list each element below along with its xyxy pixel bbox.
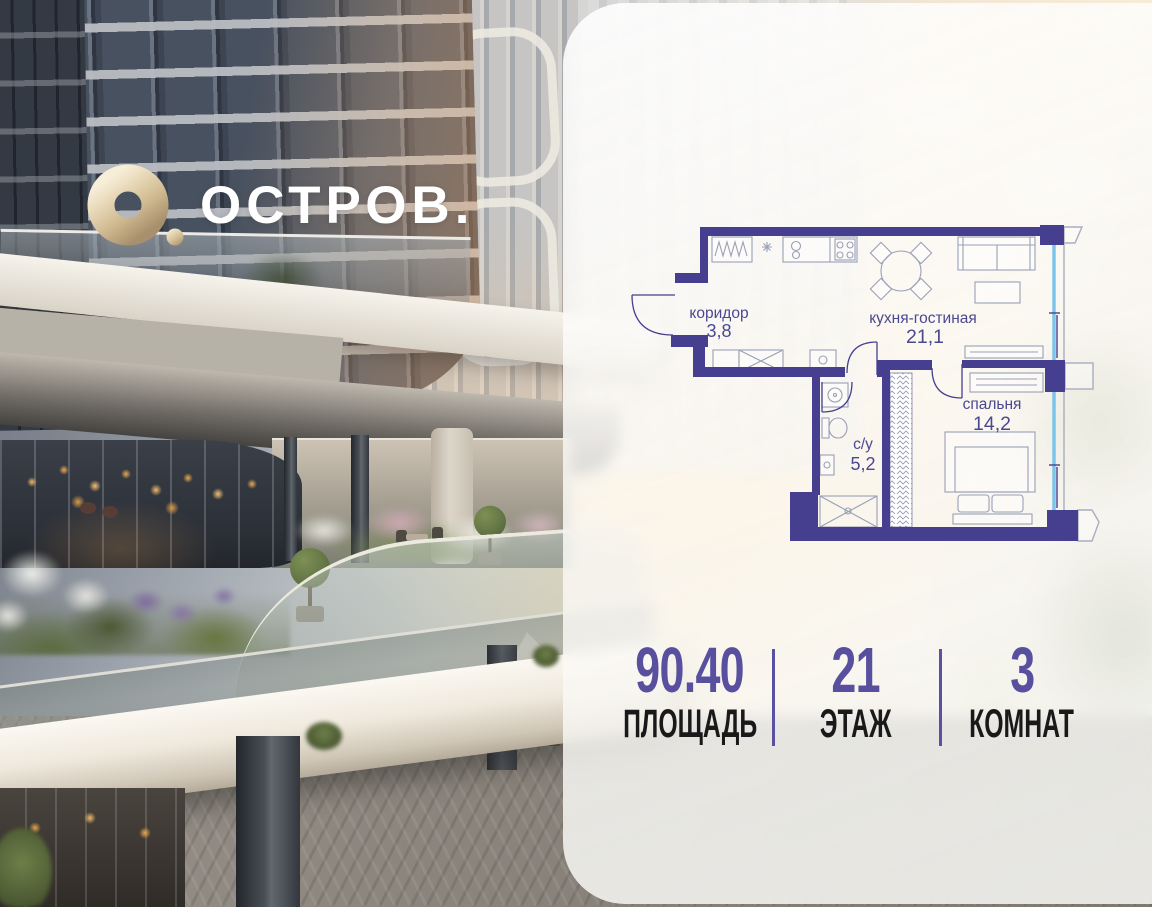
plan-duct-hatch [890,373,912,527]
stat-rooms-value: 3 [912,640,1132,700]
room-area-kitchen-living: 21,1 [906,326,944,348]
room-name-bathroom: с/у [853,436,873,453]
plan-balconies [1064,227,1099,541]
room-area-bedroom: 14,2 [973,413,1011,435]
area-value: 90.40 [636,640,745,700]
room-area-bathroom: 5,2 [850,454,875,474]
stat-rooms-label: КОМНАТ [912,705,1132,745]
room-name-corridor: коридор [689,305,748,322]
floor-plan: коридор 3,8 кухня-гостиная 21,1 с/у 5,2 … [630,215,1100,560]
floor-label: ЭТАЖ [820,705,892,743]
rooms-label: КОМНАТ [970,705,1075,743]
area-label: ПЛОЩАДЬ [623,705,757,743]
logo-mark-icon [84,160,188,254]
floor-value: 21 [832,640,880,700]
flyer-canvas: ОСТРОВ. [0,0,1152,907]
room-name-kitchen-living: кухня-гостиная [869,310,977,327]
plan-furniture [712,237,1043,527]
street-pillar [236,736,300,907]
street-plant [306,722,342,750]
logo-wordmark: ОСТРОВ. [200,181,520,237]
rooms-value: 3 [1010,640,1034,700]
room-area-corridor: 3,8 [706,321,731,341]
street-plant [533,645,559,667]
room-name-bedroom: спальня [963,396,1022,413]
diner-silhouette [80,502,96,514]
foreground-flowerbed [0,515,290,655]
